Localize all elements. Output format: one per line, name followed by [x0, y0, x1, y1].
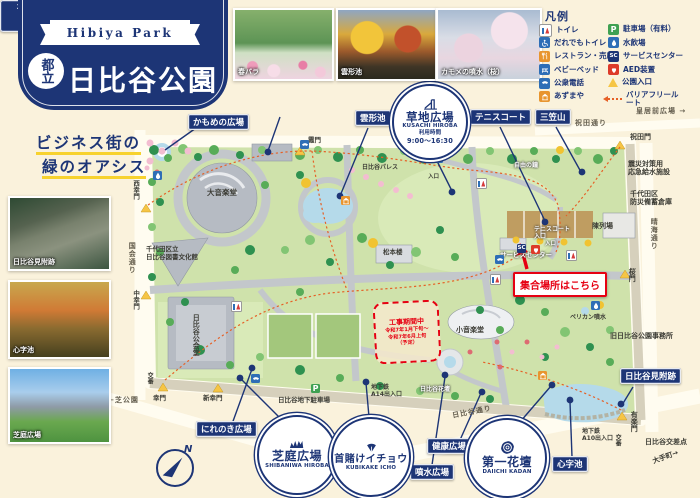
ribbon-label: Hibiya Park [50, 20, 190, 45]
legend-label: 公園入口 [622, 78, 652, 86]
ginkgo-leaf-icon [365, 442, 378, 453]
spot-name: 芝庭広場 [272, 450, 322, 463]
park-name-en: Hibiya Park [67, 26, 173, 40]
construction-notice: 工事期間中 令和7年1月下旬～ 令和7年6月上旬 （予定） [372, 299, 441, 364]
spot-daiichi-kadan: 第一花壇 DAIICHI KADAN [467, 418, 547, 498]
map-text-8: 桜門 [628, 268, 636, 282]
legend-label: ベビーベッド [554, 66, 599, 74]
map-text-4: 震災対策用 応急給水施設 [628, 160, 670, 177]
legend-label: トイレ [556, 26, 579, 34]
legend-label: AED装置 [623, 66, 655, 74]
map-text-34: テニスコート 入口 [534, 226, 570, 240]
photo-hibiya-mitsuke-ruins: 日比谷見附跡 [8, 196, 111, 271]
legend-item-baby-bed: ベビーベッド [539, 64, 599, 75]
spot-kusachi-hiroba: 草地広場 KUSACHI HIROBA 利用時間 9:00～16:30 [392, 84, 468, 160]
photo-caption: 心字池 [13, 345, 34, 355]
toilet-icon [476, 178, 487, 189]
map-box-tennis: テニスコート [470, 109, 531, 125]
aed-icon [531, 245, 540, 254]
slogan-line-2: 緑のオアシス [42, 155, 146, 179]
legend-label: あずまや [554, 92, 584, 100]
map-text-13: 交番 [614, 434, 621, 446]
compass-north-label: N [184, 444, 192, 455]
legend-label: レストラン・売店 [554, 52, 614, 60]
spot-shibaniwa-hiroba: 芝庭広場 SHIBANIWA HIROBA [257, 415, 337, 495]
map-box-kenko: 健康広場 [427, 438, 471, 454]
phone-icon [300, 140, 309, 149]
water-icon [608, 37, 619, 48]
phone-icon [251, 374, 260, 383]
map-text-31: 日比谷公会堂 [192, 314, 200, 356]
map-text-9: 有楽門 [630, 411, 638, 432]
spot-hours: 9:00～16:30 [407, 137, 453, 145]
map-text-29: 大音楽堂 [207, 189, 237, 198]
map-text-36: 入口 [428, 174, 439, 180]
gazebo-icon [538, 371, 547, 380]
gazebo-icon [341, 196, 350, 205]
legend-label: バリアフリールート [626, 91, 680, 108]
map-text-0: 祝田通り [575, 119, 607, 127]
map-text-25: 日比谷パレス [362, 164, 398, 171]
map-text-20: 幸門 [153, 395, 166, 403]
spot-name: 首賭けイチョウ [334, 454, 408, 465]
phone-icon [539, 78, 550, 89]
map-text-12: 地下鉄 A10出入口 [582, 428, 613, 442]
map-text-16: 日比谷通り [452, 404, 493, 420]
map-text-14: 地下鉄 A14出入口 [371, 384, 402, 398]
map-text-17: 国会通り [128, 242, 136, 274]
aed-icon [608, 64, 619, 75]
legend-label: 水飲場 [623, 39, 646, 47]
entrance-icon [608, 78, 618, 87]
map-text-7: 旧日比谷公園事務所 [610, 332, 673, 340]
restaurant-icon [539, 51, 550, 62]
parking-icon: P [608, 24, 619, 35]
map-text-1: 皇居前広場 → [636, 107, 686, 115]
legend-label: だれでもトイレ [554, 39, 606, 47]
meeting-point-callout: 集合場所はこちら [513, 272, 607, 297]
lawn-icon [289, 440, 305, 449]
water-icon [153, 171, 162, 180]
map-text-11: 大手町→ [651, 449, 679, 466]
barrier-icon [608, 98, 622, 100]
playground-icon [423, 99, 438, 110]
baby-bed-icon [539, 64, 550, 75]
map-text-10: 日比谷交差点 [645, 438, 687, 446]
map-text-30: 千代田区立 日比谷図書文化館 [146, 246, 198, 261]
legend-item-aed: AED装置 [608, 64, 655, 75]
toilet-icon [231, 301, 242, 312]
legend-item-barrier: バリアフリールート [608, 91, 680, 108]
map-text-24: 霞門 [308, 137, 321, 145]
map-box-shinji: 心字池 [552, 456, 588, 472]
photo-kamome-fountain-sakura: カモメの噴水（桜） [436, 8, 542, 81]
photo-shinji-pond: 心字池 [8, 280, 111, 359]
photo-spring-roses: 春バラ [233, 8, 334, 81]
legend-item-phone: 公衆電話 [539, 78, 584, 89]
metropolitan-badge: 都立 [28, 53, 64, 89]
legend-item-entrance: 公園入口 [608, 78, 652, 87]
photo-caption: 春バラ [238, 67, 259, 77]
legend-item-toilet: トイレ [539, 24, 579, 37]
wheelchair-icon [539, 37, 550, 48]
spot-name-en: SHIBANIWA HIROBA [265, 463, 329, 470]
map-box-mitsuke: 日比谷見附跡 [620, 368, 681, 384]
construction-line: （予定） [397, 340, 418, 348]
page-title: 日比谷公園 [68, 59, 218, 99]
toilet-icon [490, 274, 501, 285]
photo-caption: 雲形池 [341, 67, 362, 77]
spot-name-en: DAIICHI KADAN [482, 469, 531, 476]
spot-name: 草地広場 [406, 111, 454, 124]
map-text-21: 新幸門 [203, 395, 223, 403]
service-center-icon: SC [608, 51, 619, 62]
spot-name: 第一花壇 [482, 456, 532, 469]
spot-hours-label: 利用時間 [419, 130, 441, 137]
toilet-icon [539, 24, 552, 37]
photo-caption: 日比谷見附跡 [13, 257, 55, 267]
map-text-28: 松本楼 [383, 249, 403, 257]
legend-label: サービスセンター [623, 52, 683, 60]
map-text-32: 小音楽堂 [456, 326, 484, 334]
map-text-5: 千代田区 防災備蓄倉庫 [630, 190, 672, 207]
map-text-18: 西幸門 [131, 180, 139, 200]
toilet-icon [566, 250, 577, 261]
map-box-nirenoki: にれのき広場 [196, 421, 257, 437]
map-text-19: 中幸門 [131, 290, 139, 310]
parking-icon: P [311, 384, 320, 393]
service-center-icon: SC [517, 244, 526, 253]
map-text-33: サービスセンター [500, 252, 552, 260]
map-text-26: 自由の鐘 [514, 162, 538, 169]
map-text-23: 交番 [146, 372, 153, 384]
photo-shibaniwa-hiroba: 芝庭広場 [8, 367, 111, 444]
map-text-3: 晴海通り [650, 218, 658, 250]
legend-label: 公衆電話 [554, 79, 584, 87]
photo-caption: 芝庭広場 [13, 430, 41, 440]
legend-item-gazebo: あずまや [539, 91, 584, 102]
map-text-35: 日比谷花壇 [420, 386, 450, 393]
legend-label: 駐車場（有料） [623, 25, 676, 33]
legend-title: 凡例 [545, 8, 569, 24]
map-text-6: 陳列場 [592, 222, 613, 230]
badge-text: 都立 [40, 58, 53, 84]
phone-icon [495, 255, 504, 264]
map-text-37: 入口 [545, 241, 556, 247]
legend-item-water: 水飲場 [608, 37, 646, 48]
map-text-15: 日比谷地下駐車場 [278, 397, 330, 405]
water-icon [591, 301, 600, 310]
map-text-27: ペリカン噴水 [570, 314, 606, 321]
legend-item-restaurant: レストラン・売店 [539, 51, 614, 62]
photo-kumogata-pond: 雲形池 [336, 8, 437, 81]
map-box-funsui: 噴水広場 [410, 464, 454, 480]
legend-item-service-center: SCサービスセンター [608, 51, 683, 62]
map-box-kamome: かもめの広場 [188, 114, 249, 130]
spot-name-en: KUBIKAKE ICHO [346, 465, 396, 472]
map-box-mikasa: 三笠山 [535, 109, 571, 125]
spot-kubikake-icho: 首賭けイチョウ KUBIKAKE ICHO [331, 417, 411, 497]
slogan-line-1: ビジネス街の [36, 131, 141, 155]
gazebo-icon [539, 91, 550, 102]
legend-item-wheelchair: だれでもトイレ [539, 37, 606, 48]
map-text-2: 祝田門 [630, 133, 651, 141]
map-box-kumogata: 雲形池 [355, 110, 391, 126]
photo-caption: カモメの噴水（桜） [441, 67, 504, 77]
legend-item-parking: P駐車場（有料） [608, 24, 676, 35]
map-text-22: ←芝公園 [108, 396, 139, 404]
rose-icon [500, 440, 515, 455]
